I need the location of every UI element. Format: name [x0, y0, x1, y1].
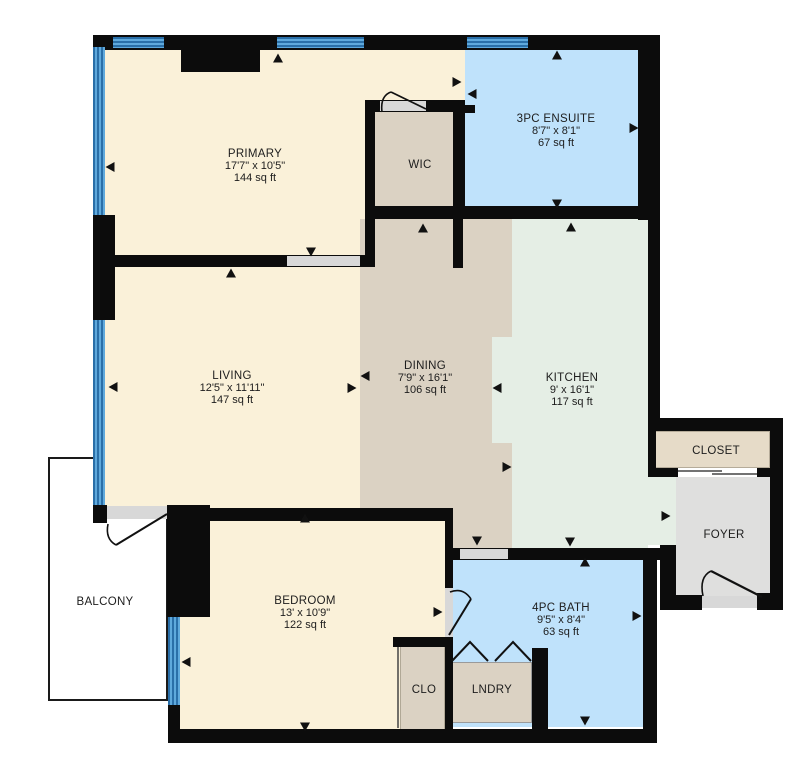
direction-arrow [300, 723, 310, 732]
room-area: 147 sq ft [200, 394, 265, 406]
room-name: 4PC BATH [532, 602, 590, 614]
entry-door-arc [702, 571, 711, 596]
room-label-bath: 4PC BATH 9'5" x 8'4" 63 sq ft [532, 602, 590, 638]
room-label-bedroom: BEDROOM 13' x 10'9" 122 sq ft [274, 595, 336, 631]
room-name: CLOSET [692, 445, 740, 457]
room-dims: 9' x 16'1" [546, 384, 599, 396]
direction-arrow [226, 269, 236, 278]
room-name: CLO [412, 684, 437, 696]
room-name: BEDROOM [274, 595, 336, 607]
room-label-lndry: LNDRY [472, 684, 512, 696]
direction-arrow [566, 223, 576, 232]
room-label-foyer: FOYER [703, 529, 744, 541]
room-area: 144 sq ft [225, 172, 285, 184]
wic-door-arc [382, 92, 391, 112]
room-area: 106 sq ft [398, 384, 452, 396]
direction-arrow [552, 51, 562, 60]
room-dims: 9'5" x 8'4" [532, 614, 590, 626]
direction-arrow [106, 162, 115, 172]
direction-arrow [565, 538, 575, 547]
room-dims: 13' x 10'9" [274, 607, 336, 619]
room-dims: 8'7" x 8'1" [517, 125, 596, 137]
room-label-clo: CLO [412, 684, 437, 696]
direction-arrow [306, 248, 316, 257]
direction-arrow [300, 514, 310, 523]
direction-arrow [503, 462, 512, 472]
room-name: DINING [398, 360, 452, 372]
direction-arrow [662, 511, 671, 521]
direction-arrow [361, 371, 370, 381]
room-name: LNDRY [472, 684, 512, 696]
bath-door-leaf [449, 599, 471, 635]
closet-sliding-door [678, 471, 757, 474]
direction-arrow [109, 382, 118, 392]
room-label-balcony: BALCONY [76, 596, 133, 608]
room-name: KITCHEN [546, 372, 599, 384]
laundry-bifold-doors [452, 642, 531, 661]
room-label-living: LIVING 12'5" x 11'11" 147 sq ft [200, 370, 265, 406]
direction-arrow [453, 77, 462, 87]
room-name: PRIMARY [225, 148, 285, 160]
room-label-dining: DINING 7'9" x 16'1" 106 sq ft [398, 360, 452, 396]
room-dims: 12'5" x 11'11" [200, 382, 265, 394]
room-area: 63 sq ft [532, 626, 590, 638]
balcony-door-leaf [116, 514, 167, 545]
direction-arrow [630, 123, 639, 133]
room-name: 3PC ENSUITE [517, 113, 596, 125]
room-label-wic: WIC [408, 159, 431, 171]
direction-arrow [418, 224, 428, 233]
room-area: 117 sq ft [546, 396, 599, 408]
direction-arrow [580, 717, 590, 726]
wic-door-leaf [391, 92, 426, 109]
room-name: WIC [408, 159, 431, 171]
bath-door-arc [450, 591, 471, 599]
room-area: 67 sq ft [517, 137, 596, 149]
room-dims: 7'9" x 16'1" [398, 372, 452, 384]
direction-arrow [580, 558, 590, 567]
direction-arrow [552, 200, 562, 209]
direction-arrow [468, 89, 477, 99]
direction-arrow [348, 383, 357, 393]
direction-arrow [633, 611, 642, 621]
direction-arrow [182, 657, 191, 667]
floor-plan: PRIMARY 17'7" x 10'5" 144 sq ft WIC 3PC … [0, 0, 810, 768]
room-area: 122 sq ft [274, 619, 336, 631]
direction-arrow [273, 54, 283, 63]
direction-arrow [472, 537, 482, 546]
room-name: BALCONY [76, 596, 133, 608]
room-label-ensuite: 3PC ENSUITE 8'7" x 8'1" 67 sq ft [517, 113, 596, 149]
room-name: LIVING [200, 370, 265, 382]
room-name: FOYER [703, 529, 744, 541]
room-label-kitchen: KITCHEN 9' x 16'1" 117 sq ft [546, 372, 599, 408]
entry-door-leaf [711, 571, 762, 597]
direction-arrow [493, 383, 502, 393]
direction-arrow [434, 607, 443, 617]
room-dims: 17'7" x 10'5" [225, 160, 285, 172]
balcony-door-arc [107, 524, 116, 545]
room-label-closet: CLOSET [692, 445, 740, 457]
room-label-primary: PRIMARY 17'7" x 10'5" 144 sq ft [225, 148, 285, 184]
